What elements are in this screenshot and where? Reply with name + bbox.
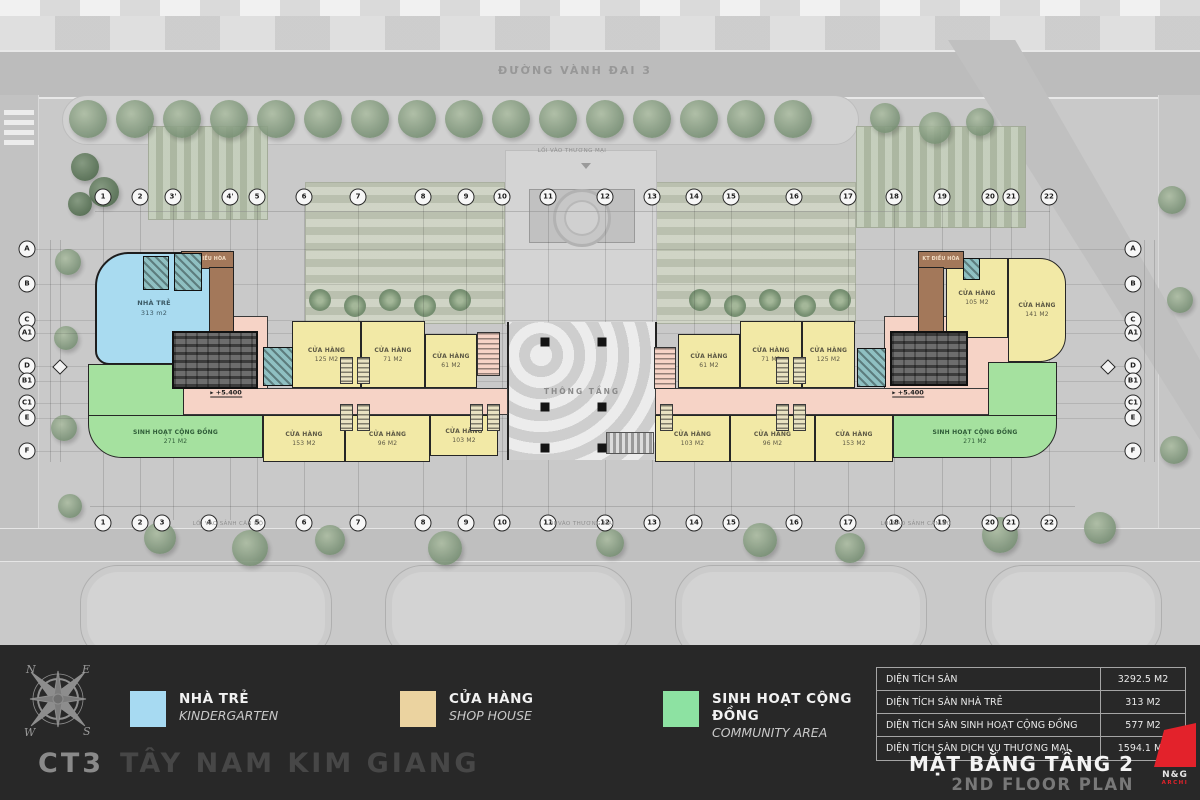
grid-bubble-bottom: 13 bbox=[644, 515, 661, 532]
entrance-label: LỐI VÀO SẢNH CĂN HỘ bbox=[193, 521, 264, 527]
room-stairg bbox=[340, 404, 353, 431]
evergreen-tree bbox=[68, 192, 92, 216]
left-road bbox=[0, 95, 39, 530]
level-marker: ▸ +5.400 bbox=[892, 389, 924, 398]
room-shop: CỬA HÀNG61 M2 bbox=[678, 334, 740, 388]
palm-tree bbox=[449, 289, 471, 311]
grid-bubble-top: 4' bbox=[222, 189, 239, 206]
grid-bubble-right: E bbox=[1125, 410, 1142, 427]
grid-line bbox=[36, 249, 1130, 250]
structural-column bbox=[541, 403, 550, 412]
room-stair bbox=[477, 332, 500, 376]
logo-subtext: ARCHI bbox=[1140, 780, 1198, 786]
room-community bbox=[988, 362, 1057, 416]
grid-bubble-top: 22 bbox=[1041, 189, 1058, 206]
room-label: CỬA HÀNG153 M2 bbox=[264, 416, 344, 461]
grid-bubble-left: A bbox=[19, 241, 36, 258]
stats-row-label: DIỆN TÍCH SÀN SINH HOẠT CỘNG ĐỒNG bbox=[877, 714, 1100, 736]
stats-row-value: 313 M2 bbox=[1100, 691, 1185, 713]
legend-text: NHÀ TRẺKINDERGARTEN bbox=[179, 691, 278, 724]
legend-item: SINH HOẠT CỘNG ĐỒNGCOMMUNITY AREA bbox=[663, 691, 870, 741]
grid-bubble-bottom: 8 bbox=[415, 515, 432, 532]
site-tree bbox=[315, 525, 345, 555]
legend-label: CỬA HÀNG bbox=[449, 691, 533, 708]
street-tree bbox=[69, 100, 107, 138]
grid-line bbox=[502, 203, 503, 520]
grid-bubble-top: 18 bbox=[886, 189, 903, 206]
road-name-label: ĐƯỜNG VÀNH ĐAI 3 bbox=[498, 64, 652, 77]
street-tree bbox=[304, 100, 342, 138]
level-marker: ▸ +5.400 bbox=[210, 389, 242, 398]
grid-bubble-right: A1 bbox=[1125, 325, 1142, 342]
palm-tree bbox=[759, 289, 781, 311]
section-marker bbox=[1100, 359, 1116, 375]
logo-mark bbox=[1154, 723, 1196, 767]
project-code: CT3 bbox=[38, 748, 104, 779]
grid-bubble-bottom: 17 bbox=[840, 515, 857, 532]
grid-bubble-top: 11 bbox=[540, 189, 557, 206]
grid-bubble-top: 17 bbox=[840, 189, 857, 206]
street-tree bbox=[727, 100, 765, 138]
room-tech bbox=[174, 253, 202, 291]
grid-bubble-top: 9 bbox=[458, 189, 475, 206]
evergreen-tree bbox=[71, 153, 99, 181]
site-tree bbox=[58, 494, 82, 518]
room-label: CỬA HÀNG141 M2 bbox=[1009, 259, 1065, 361]
room-kt bbox=[209, 267, 234, 335]
room-tech bbox=[857, 348, 886, 387]
room-shop: CỬA HÀNG153 M2 bbox=[815, 415, 893, 462]
palm-tree bbox=[379, 289, 401, 311]
grid-bubble-bottom: 6 bbox=[296, 515, 313, 532]
escalator bbox=[606, 432, 654, 454]
grid-bubble-top: 16 bbox=[786, 189, 803, 206]
grid-bubble-top: 20 bbox=[982, 189, 999, 206]
grid-bubble-left: B1 bbox=[19, 373, 36, 390]
section-marker bbox=[52, 359, 68, 375]
legend-sublabel: KINDERGARTEN bbox=[179, 708, 278, 724]
sidewalk-band bbox=[0, 16, 1200, 50]
legend-swatch-shop-house bbox=[400, 691, 436, 727]
entrance-arrow-icon bbox=[581, 163, 591, 169]
room-shop: CỬA HÀNG61 M2 bbox=[425, 334, 477, 388]
entrance-label: LỐI VÀO THƯƠNG MẠI bbox=[538, 148, 607, 154]
sidewalk-top bbox=[0, 0, 1200, 16]
room-corridor bbox=[655, 388, 1042, 415]
street-tree bbox=[398, 100, 436, 138]
room-stairg bbox=[340, 357, 353, 384]
room-stairg bbox=[660, 404, 673, 431]
floor-plan-sheet: ĐƯỜNG VÀNH ĐAI 3 THÔNG TẦNG 123'4'567891… bbox=[0, 0, 1200, 800]
project-title: CT3TÂY NAM KIM GIANG bbox=[38, 748, 479, 779]
plan-subtitle: 2ND FLOOR PLAN bbox=[909, 775, 1134, 796]
grid-bubble-top: 6 bbox=[296, 189, 313, 206]
street-tree bbox=[633, 100, 671, 138]
grid-bubble-left: B bbox=[19, 276, 36, 293]
company-logo: N&G ARCHI bbox=[1140, 723, 1198, 797]
room-tech bbox=[263, 347, 293, 386]
grid-bubble-bottom: 20 bbox=[982, 515, 999, 532]
site-tree bbox=[919, 112, 951, 144]
grid-bubble-top: 2 bbox=[132, 189, 149, 206]
structural-column bbox=[541, 444, 550, 453]
entrance-label: LỐI VÀO SẢNH CĂN HỘ bbox=[881, 521, 952, 527]
crosswalk bbox=[4, 110, 34, 150]
site-tree bbox=[232, 530, 268, 566]
stats-row-label: DIỆN TÍCH SÀN bbox=[877, 668, 1100, 690]
dimension-line bbox=[1154, 240, 1155, 462]
grid-bubble-top: 14 bbox=[686, 189, 703, 206]
grid-bubble-top: 13 bbox=[644, 189, 661, 206]
structural-column bbox=[598, 338, 607, 347]
room-stairg bbox=[793, 404, 806, 431]
street-tree bbox=[586, 100, 624, 138]
courtyard-garden-right bbox=[656, 182, 856, 324]
palm-tree bbox=[414, 295, 436, 317]
grid-bubble-left: A1 bbox=[19, 325, 36, 342]
footer: N E S W NHÀ TRẺKINDERGARTENCỬA HÀNGSHOP … bbox=[0, 645, 1200, 800]
grid-bubble-bottom: 22 bbox=[1041, 515, 1058, 532]
grid-bubble-top: 5 bbox=[249, 189, 266, 206]
stats-row: DIỆN TÍCH SÀN3292.5 M2 bbox=[877, 668, 1185, 691]
grid-bubble-bottom: 16 bbox=[786, 515, 803, 532]
site-tree bbox=[835, 533, 865, 563]
room-label: SINH HOẠT CỘNG ĐỒNG271 M2 bbox=[89, 416, 262, 457]
site-tree bbox=[1167, 287, 1193, 313]
room-stairg bbox=[357, 357, 370, 384]
room-tech bbox=[143, 256, 169, 290]
grid-bubble-bottom: 14 bbox=[686, 515, 703, 532]
grid-bubble-top: 19 bbox=[934, 189, 951, 206]
grid-bubble-top: 10 bbox=[494, 189, 511, 206]
room-stairg bbox=[776, 404, 789, 431]
palm-tree bbox=[344, 295, 366, 317]
logo-text: N&G bbox=[1140, 770, 1198, 780]
project-name: TÂY NAM KIM GIANG bbox=[120, 748, 479, 779]
street-tree bbox=[210, 100, 248, 138]
street-tree bbox=[774, 100, 812, 138]
entry-plaza bbox=[505, 150, 657, 326]
room-core bbox=[172, 331, 258, 389]
room-community bbox=[88, 364, 184, 416]
site-tree bbox=[1160, 436, 1188, 464]
street-tree bbox=[445, 100, 483, 138]
grid-bubble-bottom: 3 bbox=[154, 515, 171, 532]
site-tree bbox=[1158, 186, 1186, 214]
legend-text: CỬA HÀNGSHOP HOUSE bbox=[449, 691, 533, 724]
room-label: CỬA HÀNG61 M2 bbox=[426, 335, 476, 387]
room-label: CỬA HÀNG61 M2 bbox=[679, 335, 739, 387]
room-stairg bbox=[487, 404, 500, 431]
room-corridor bbox=[150, 388, 508, 415]
street-tree bbox=[680, 100, 718, 138]
grid-bubble-top: 3' bbox=[165, 189, 182, 206]
stats-row-label: DIỆN TÍCH SÀN NHÀ TRẺ bbox=[877, 691, 1100, 713]
street-tree bbox=[257, 100, 295, 138]
grid-bubble-top: 12 bbox=[597, 189, 614, 206]
stats-row-value: 3292.5 M2 bbox=[1100, 668, 1185, 690]
room-stairg bbox=[776, 357, 789, 384]
room-stairg bbox=[470, 404, 483, 431]
palm-tree bbox=[794, 295, 816, 317]
room-stair bbox=[654, 347, 676, 389]
legend-sublabel: SHOP HOUSE bbox=[449, 708, 533, 724]
room-tech bbox=[963, 258, 980, 280]
room-stairg bbox=[357, 404, 370, 431]
site-tree bbox=[870, 103, 900, 133]
site-tree bbox=[596, 529, 624, 557]
palm-tree bbox=[689, 289, 711, 311]
grid-bubble-right: A bbox=[1125, 241, 1142, 258]
room-kt bbox=[918, 267, 944, 335]
legend-label: NHÀ TRẺ bbox=[179, 691, 278, 708]
room-shop: CỬA HÀNG125 M2 bbox=[802, 321, 855, 388]
site-tree bbox=[966, 108, 994, 136]
street-tree bbox=[163, 100, 201, 138]
structural-column bbox=[598, 403, 607, 412]
room-label: KT ĐIỀU HÒA bbox=[919, 252, 963, 268]
site-tree bbox=[428, 531, 462, 565]
grid-bubble-top: 1 bbox=[95, 189, 112, 206]
grid-bubble-right: B bbox=[1125, 276, 1142, 293]
legend-sublabel: COMMUNITY AREA bbox=[712, 725, 870, 741]
grid-bubble-bottom: 7 bbox=[350, 515, 367, 532]
structural-column bbox=[598, 444, 607, 453]
site-tree bbox=[54, 326, 78, 350]
legend-swatch-kindergarten bbox=[130, 691, 166, 727]
grid-bubble-left: F bbox=[19, 443, 36, 460]
room-shop: CỬA HÀNG71 M2 bbox=[361, 321, 425, 388]
grid-bubble-bottom: 9 bbox=[458, 515, 475, 532]
courtyard-garden-left bbox=[305, 182, 505, 324]
room-label: CỬA HÀNG125 M2 bbox=[803, 322, 854, 387]
grid-bubble-top: 15 bbox=[723, 189, 740, 206]
grid-bubble-bottom: 10 bbox=[494, 515, 511, 532]
room-shop: CỬA HÀNG141 M2 bbox=[1008, 258, 1066, 362]
plan-title: MẶT BẰNG TẦNG 2 bbox=[909, 753, 1134, 775]
room-stairg bbox=[793, 357, 806, 384]
grid-bubble-top: 8 bbox=[415, 189, 432, 206]
dimension-line bbox=[95, 211, 1050, 212]
street-tree bbox=[539, 100, 577, 138]
stats-row: DIỆN TÍCH SÀN NHÀ TRẺ313 M2 bbox=[877, 691, 1185, 714]
site-tree bbox=[55, 249, 81, 275]
legend-item: NHÀ TRẺKINDERGARTEN bbox=[130, 691, 278, 727]
grid-bubble-bottom: 15 bbox=[723, 515, 740, 532]
legend-label: SINH HOẠT CỘNG ĐỒNG bbox=[712, 691, 870, 725]
grid-bubble-right: B1 bbox=[1125, 373, 1142, 390]
room-shop: CỬA HÀNG153 M2 bbox=[263, 415, 345, 462]
grid-bubble-bottom: 1 bbox=[95, 515, 112, 532]
palm-tree bbox=[724, 295, 746, 317]
street-tree bbox=[116, 100, 154, 138]
site-tree bbox=[743, 523, 777, 557]
legend-item: CỬA HÀNGSHOP HOUSE bbox=[400, 691, 533, 727]
legend-swatch-community-area bbox=[663, 691, 699, 727]
site-tree bbox=[1084, 512, 1116, 544]
room-label: SINH HOẠT CỘNG ĐỒNG271 M2 bbox=[894, 416, 1056, 457]
entrance-label: LỐI VÀO THƯƠNG MẠI bbox=[546, 521, 615, 527]
grid-bubble-top: 7 bbox=[350, 189, 367, 206]
grid-bubble-bottom: 2 bbox=[132, 515, 149, 532]
dimension-line bbox=[1144, 240, 1145, 462]
room-community: SINH HOẠT CỘNG ĐỒNG271 M2 bbox=[893, 415, 1057, 458]
grid-bubble-bottom: 21 bbox=[1003, 515, 1020, 532]
title-block: MẶT BẰNG TẦNG 2 2ND FLOOR PLAN bbox=[909, 753, 1134, 796]
street-tree bbox=[351, 100, 389, 138]
palm-tree bbox=[309, 289, 331, 311]
room-community: SINH HOẠT CỘNG ĐỒNG271 M2 bbox=[88, 415, 263, 458]
legend-text: SINH HOẠT CỘNG ĐỒNGCOMMUNITY AREA bbox=[712, 691, 870, 741]
grid-bubble-left: E bbox=[19, 410, 36, 427]
room-label: CỬA HÀNG71 M2 bbox=[741, 322, 801, 387]
street-tree bbox=[492, 100, 530, 138]
void-label: THÔNG TẦNG bbox=[544, 387, 620, 396]
room-core bbox=[890, 331, 968, 386]
grid-bubble-top: 21 bbox=[1003, 189, 1020, 206]
garden-top-left bbox=[148, 126, 268, 220]
stats-row: DIỆN TÍCH SÀN SINH HOẠT CỘNG ĐỒNG577 M2 bbox=[877, 714, 1185, 737]
room-label: CỬA HÀNG153 M2 bbox=[816, 416, 892, 461]
structural-column bbox=[541, 338, 550, 347]
room-label: CỬA HÀNG71 M2 bbox=[362, 322, 424, 387]
grid-bubble-right: F bbox=[1125, 443, 1142, 460]
dimension-line bbox=[90, 506, 1075, 507]
